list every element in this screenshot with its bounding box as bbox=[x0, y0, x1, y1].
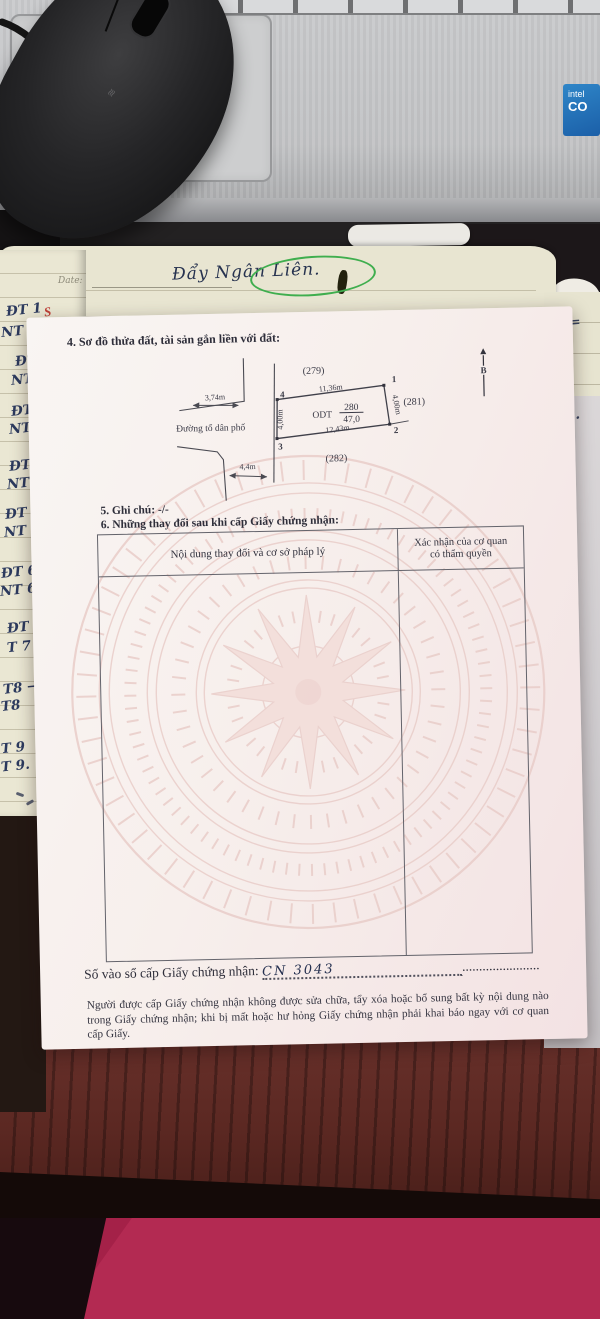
dim-label-right: 4,00m bbox=[390, 394, 403, 416]
mouse-logo: ≋ bbox=[95, 86, 118, 113]
dim-label-offset: 3,74m bbox=[205, 392, 226, 402]
adjacent-parcel-282: (282) bbox=[325, 453, 347, 464]
notebook-entry: T8 bbox=[0, 697, 21, 715]
vertex-3 bbox=[275, 437, 278, 440]
notebook-entry: T 9 bbox=[0, 739, 26, 757]
adjacent-parcel-279: (279) bbox=[303, 366, 325, 377]
dim-label-left: 4,00m bbox=[275, 409, 284, 430]
parcel-number: 280 bbox=[344, 403, 359, 413]
corner-marker-3: 3 bbox=[278, 441, 283, 451]
land-use-label: ODT bbox=[312, 410, 332, 420]
certificate-page: 4. Sơ đồ thửa đất, tài sản gắn liền với … bbox=[26, 306, 587, 1049]
vertex-2 bbox=[388, 423, 391, 426]
fraction-bar bbox=[339, 412, 363, 413]
vertex-1 bbox=[382, 384, 385, 387]
table-header-col2-line1: Xác nhận của cơ quan bbox=[414, 535, 507, 549]
notebook-entry: T 9. bbox=[0, 757, 30, 776]
date-label: Date: bbox=[58, 276, 83, 286]
laptop-foot-right bbox=[348, 223, 470, 247]
adjacent-parcel-281: (281) bbox=[403, 396, 425, 407]
registry-value: CN 3043 bbox=[262, 964, 335, 979]
notebook-entry: T 7 bbox=[6, 638, 32, 656]
parcel-diagram: 3,74m 4,4m 1 2 3 4 11,36m 12,43m 4,00m 4… bbox=[161, 346, 541, 522]
north-label: B bbox=[480, 365, 486, 375]
vertex-4 bbox=[276, 398, 279, 401]
table-header-col2: Xác nhận của cơ quan có thẩm quyền bbox=[398, 526, 524, 570]
table-body-row bbox=[99, 568, 532, 961]
registry-trailing-dots: ....................... bbox=[462, 957, 540, 974]
table-body-cell-col2 bbox=[399, 568, 532, 955]
pen-scribble bbox=[26, 799, 34, 806]
dim-label-top: 11,36m bbox=[318, 382, 344, 394]
photo-scene: intel CO ≋ Date: Đẩy Ngân Liên. ĐT 1 NT … bbox=[0, 0, 600, 1319]
road-edge-lower bbox=[177, 446, 226, 502]
corner-marker-2: 2 bbox=[394, 425, 399, 435]
dim-line-road bbox=[230, 475, 267, 478]
date-rule bbox=[92, 287, 232, 288]
road-edge-upper bbox=[178, 358, 244, 410]
registry-label: Số vào sổ cấp Giấy chứng nhận: bbox=[84, 963, 259, 982]
north-arrow-line bbox=[483, 355, 484, 396]
corner-marker-1: 1 bbox=[392, 374, 397, 384]
intel-sticker: intel CO bbox=[563, 84, 600, 136]
intel-logo-text: intel bbox=[568, 89, 600, 99]
section5-note: 5. Ghi chú: -/- bbox=[100, 504, 169, 517]
changes-table: Nội dung thay đổi và cơ sở pháp lý Xác n… bbox=[97, 525, 533, 962]
road-label: Đường tổ dân phố bbox=[176, 422, 245, 434]
intel-core-text: CO bbox=[568, 99, 600, 114]
pen-scribble bbox=[16, 792, 25, 798]
dim-line-offset bbox=[193, 404, 238, 406]
dim-label-road: 4,4m bbox=[239, 462, 256, 471]
table-header-col1: Nội dung thay đổi và cơ sở pháp lý bbox=[98, 529, 399, 576]
table-body-cell-col1 bbox=[99, 571, 407, 961]
parcel-area: 47,0 bbox=[343, 415, 360, 425]
boundary-extension bbox=[390, 421, 409, 424]
table-header-col2-line2: có thẩm quyền bbox=[430, 548, 492, 561]
mouse-scroll-wheel bbox=[125, 0, 175, 43]
north-arrow-head bbox=[480, 348, 486, 354]
corner-marker-4: 4 bbox=[280, 389, 285, 399]
